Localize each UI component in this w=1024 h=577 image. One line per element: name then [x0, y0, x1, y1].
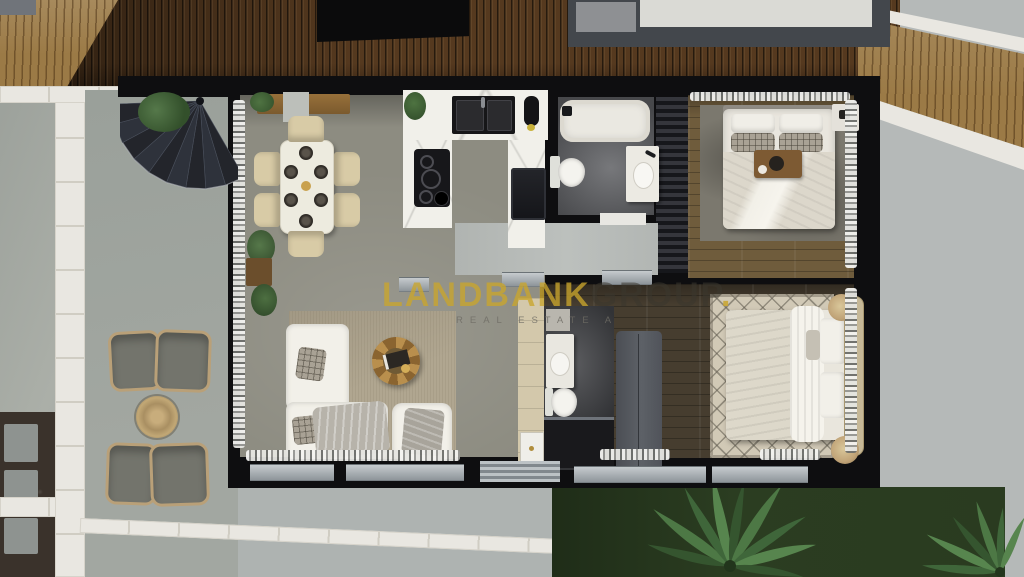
lemon: [527, 124, 535, 131]
watermark-brand-suffix: GROUP: [591, 276, 721, 314]
outdoor-chair: [111, 333, 160, 389]
hallway-floor: [455, 223, 658, 275]
place-setting: [284, 165, 298, 179]
pot: [434, 191, 449, 206]
entry-closet: [656, 97, 688, 273]
white-path-left-bottom: [0, 497, 58, 517]
watermark-brand-dot: .: [721, 276, 732, 314]
dining-chair: [254, 152, 280, 186]
curtain-bedroom2-bottom: [600, 449, 670, 460]
wall-plant: [251, 284, 277, 316]
place-setting: [284, 193, 298, 207]
bed2-pillow: [820, 372, 846, 418]
vanity-2-basin: [550, 352, 570, 376]
burner: [420, 155, 434, 169]
place-setting: [314, 193, 328, 207]
palm-tree-2: [850, 480, 1024, 577]
tray-cup: [758, 165, 767, 174]
place-setting: [314, 165, 328, 179]
tub-faucet: [562, 106, 572, 116]
bed2-accent-pillow: [806, 330, 820, 360]
tray-plate: [769, 156, 784, 171]
bed2-pillow: [820, 318, 846, 364]
curtain-bedroom2-bottom: [760, 449, 820, 460]
watermark-tagline: REAL ESTATE A: [456, 315, 618, 326]
place-setting: [299, 146, 313, 160]
floor-plan-render: LANDBANKGROUP. REAL ESTATE A: [0, 0, 1024, 577]
outdoor-chair: [157, 332, 209, 390]
dining-chair: [288, 231, 324, 257]
faucet: [481, 97, 485, 108]
skylight-panel: [576, 2, 636, 32]
counter-plant: [404, 92, 426, 120]
sink-basin: [456, 100, 484, 131]
curtain-bedroom1-top: [690, 92, 850, 101]
vanity-1-basin: [633, 162, 654, 189]
window-sill: [712, 466, 808, 483]
skylight-glass: [640, 0, 872, 27]
window-sill: [346, 464, 464, 481]
wall-shelf: [246, 258, 272, 286]
bed2-duvet: [726, 310, 792, 440]
sink-basin: [487, 100, 512, 131]
dining-chair: [254, 193, 280, 227]
bed1-pillow: [731, 114, 775, 133]
watermark-brand-primary: LANDBANK: [382, 276, 591, 314]
roof-corner: [0, 0, 36, 15]
burner: [419, 190, 433, 204]
shower-glass: [544, 417, 614, 420]
bathroom1-door: [600, 213, 646, 225]
window-sill: [574, 466, 706, 483]
paver: [4, 518, 38, 554]
console-plant: [250, 92, 274, 112]
terrace-plant: [138, 92, 190, 132]
curtain-bedroom1-right: [845, 100, 857, 268]
outdoor-chair: [108, 445, 155, 503]
bathtub: [560, 100, 650, 142]
watermark-brand: LANDBANKGROUP.: [382, 276, 732, 315]
built-in-appliance: [511, 168, 546, 220]
centerpiece: [301, 181, 311, 191]
dining-chair: [288, 116, 324, 142]
round-woven-mat: [136, 396, 178, 438]
table-bowl: [401, 364, 410, 373]
white-path-left: [55, 88, 85, 577]
terrace-steps: [480, 461, 560, 482]
window-sill: [250, 464, 334, 481]
bed1-pillow: [779, 114, 823, 133]
bed2-drape: [790, 306, 824, 442]
roof-structure-dark: [317, 0, 469, 42]
burner: [421, 169, 441, 189]
paver: [4, 424, 38, 462]
dining-chair: [334, 152, 360, 186]
cabinet-handle: [529, 446, 534, 451]
place-setting: [299, 214, 313, 228]
curtain-living-bottom: [246, 450, 460, 461]
dining-chair: [334, 193, 360, 227]
bottle: [524, 96, 539, 126]
top-wall: [118, 76, 240, 97]
curtain-bedroom2-right: [845, 288, 857, 453]
outdoor-chair: [152, 445, 207, 504]
sofa-cushion: [295, 346, 327, 382]
